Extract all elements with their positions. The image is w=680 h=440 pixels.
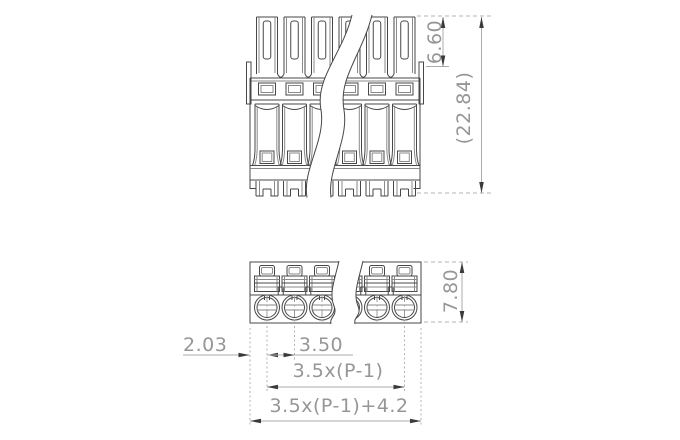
- tower-slot: [373, 21, 381, 59]
- contact-box-inner: [262, 153, 272, 162]
- clamp-body: [255, 276, 280, 292]
- dim-span-label: 3.5x(P-1): [293, 360, 384, 382]
- vent-window-inner: [344, 86, 356, 93]
- contact-box-inner: [372, 153, 382, 162]
- clamp-tab-inner: [317, 268, 328, 275]
- tower-notch: [278, 74, 285, 77]
- clamp-tab-inner: [372, 268, 383, 275]
- dimension-arrow: [479, 182, 484, 193]
- contact-box-inner: [400, 153, 410, 162]
- clamp-tab-inner: [399, 268, 410, 275]
- vent-window-inner: [261, 86, 273, 93]
- tower-slot: [401, 21, 409, 59]
- tower-slot: [263, 21, 271, 59]
- tower-slot: [291, 21, 299, 59]
- foot-end-cap: [414, 180, 421, 189]
- contact-box-inner: [290, 153, 300, 162]
- vent-window-inner: [399, 86, 411, 93]
- dimension-arrow: [239, 353, 250, 358]
- front-view-drawing: [247, 15, 424, 198]
- tower-slot: [318, 21, 326, 59]
- cavity-mouth: [283, 106, 307, 110]
- dimension-arrow: [267, 385, 278, 390]
- cavity-mouth: [255, 106, 279, 110]
- dimension-arrow: [250, 419, 261, 424]
- outline-path: [280, 150, 283, 165]
- dim-overall-width-label: 3.5x(P-1)+4.2: [270, 395, 409, 417]
- dimension-arrow: [479, 17, 484, 28]
- outline-path: [417, 150, 420, 165]
- clamp-body: [392, 276, 417, 292]
- vent-window-inner: [371, 86, 383, 93]
- cavity-mouth: [393, 106, 417, 110]
- outline-path: [390, 150, 393, 165]
- plan-view-drawing: [250, 261, 421, 324]
- outline-path: [253, 150, 256, 165]
- contact-box-inner: [345, 153, 355, 162]
- dim-edge-offset-label: 2.03: [183, 334, 227, 356]
- tower-notch: [360, 74, 367, 77]
- technical-drawing-svg: 6.60 (22.84) 7.80 2.03 3.50 3.5x(P-1) 3.…: [0, 0, 680, 440]
- dim-plan-depth-label: 7.80: [440, 269, 462, 313]
- clamp-body: [365, 276, 390, 292]
- clamp-body: [310, 276, 335, 292]
- drawing-canvas: 6.60 (22.84) 7.80 2.03 3.50 3.5x(P-1) 3.…: [0, 0, 680, 440]
- clamp-tab-inner: [289, 268, 300, 275]
- vent-window-inner: [289, 86, 301, 93]
- outline-path: [308, 150, 311, 165]
- dimension-arrow: [410, 419, 421, 424]
- dimension-arrow: [284, 353, 295, 358]
- tower-notch: [388, 74, 395, 77]
- outline-path: [363, 150, 366, 165]
- dim-pitch-label: 3.50: [299, 334, 343, 356]
- dim-tower-height-label: 6.60: [424, 20, 446, 64]
- dim-overall-height-label: (22.84): [453, 72, 475, 145]
- dimension-arrow: [394, 385, 405, 390]
- clamp-body: [282, 276, 307, 292]
- clamp-tab-inner: [262, 268, 273, 275]
- cavity-mouth: [365, 106, 389, 110]
- tower-notch: [305, 74, 312, 77]
